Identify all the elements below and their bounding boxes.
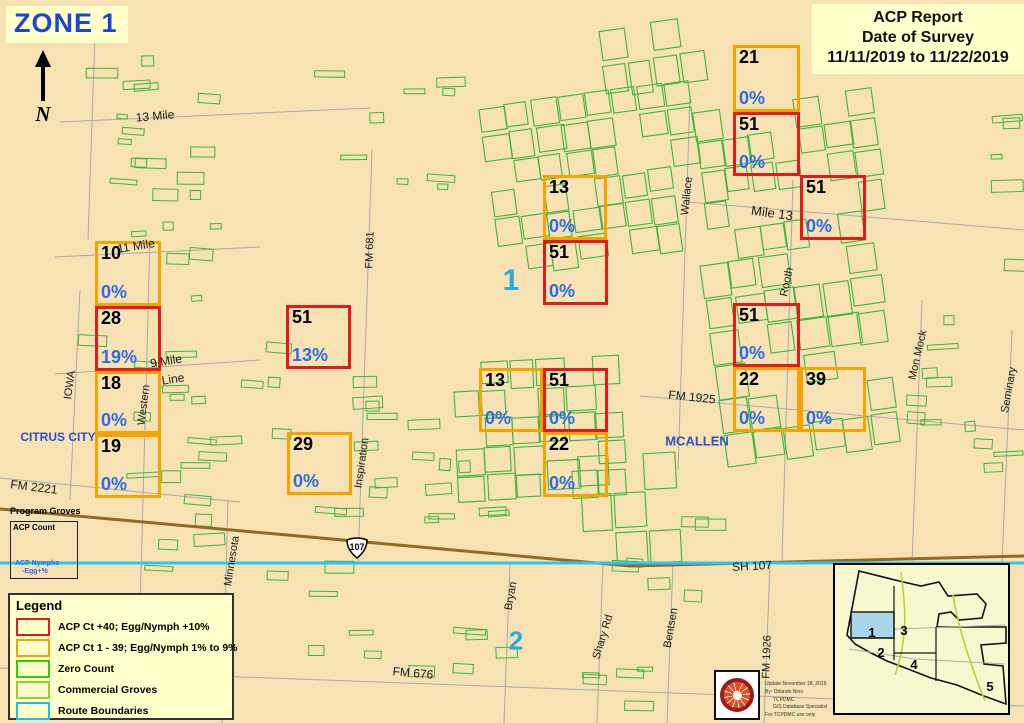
- commercial-grove: [845, 88, 874, 117]
- commercial-grove: [640, 111, 669, 137]
- commercial-grove: [1003, 118, 1020, 129]
- commercial-grove: [267, 571, 288, 580]
- commercial-grove: [643, 452, 677, 489]
- commercial-grove: [647, 167, 673, 192]
- commercial-grove: [657, 224, 683, 254]
- survey-square: 510%: [733, 303, 800, 367]
- commercial-grove: [974, 439, 992, 449]
- road-label: FM 681: [363, 231, 376, 269]
- commercial-grove: [454, 391, 479, 417]
- credit-line: GIS Database Specialist: [765, 704, 843, 712]
- acp-count: 51: [549, 370, 569, 391]
- commercial-grove: [341, 155, 367, 160]
- commercial-grove: [163, 222, 173, 230]
- commercial-grove: [153, 189, 178, 201]
- commercial-grove: [637, 83, 665, 109]
- credit-line: For TCPDMC use only: [765, 712, 843, 720]
- commercial-grove: [453, 627, 485, 635]
- commercial-grove: [994, 451, 1023, 457]
- commercial-grove: [131, 158, 147, 167]
- map-credits: Update November 18, 2019By: Orlando Nino…: [765, 681, 843, 720]
- commercial-grove: [370, 112, 384, 123]
- commercial-grove: [241, 380, 263, 389]
- commercial-grove: [425, 483, 452, 496]
- acp-count: 18: [101, 373, 121, 394]
- us-107-shield-icon: 107: [344, 536, 370, 560]
- egg-nymph-pct: 0%: [806, 408, 832, 429]
- commercial-grove: [558, 94, 586, 121]
- road-line: [88, 35, 95, 240]
- survey-square: 210%: [733, 45, 800, 112]
- acp-count: 13: [549, 177, 569, 198]
- commercial-grove: [458, 476, 486, 502]
- commercial-grove: [857, 310, 888, 345]
- commercial-grove: [628, 60, 653, 95]
- commercial-grove: [132, 231, 146, 237]
- commercial-grove: [198, 93, 220, 104]
- commercial-grove: [167, 253, 189, 264]
- acp-count: 22: [549, 434, 569, 455]
- acp-count: 29: [293, 434, 313, 455]
- commercial-grove: [649, 529, 681, 563]
- commercial-grove: [587, 118, 616, 149]
- commercial-grove: [629, 226, 659, 253]
- commercial-grove: [622, 173, 647, 198]
- acp-count: 51: [549, 242, 569, 263]
- legend-swatch: [16, 702, 50, 720]
- report-line-3: 11/11/2019 to 11/22/2019: [814, 48, 1022, 68]
- legend-label: ACP Ct 1 - 39; Egg/Nymph 1% to 9%: [58, 642, 238, 654]
- commercial-grove: [427, 174, 455, 183]
- commercial-grove: [268, 377, 280, 388]
- commercial-grove: [437, 77, 466, 87]
- legend-label: Route Boundaries: [58, 705, 148, 717]
- commercial-grove: [170, 394, 184, 400]
- road-line: [60, 108, 370, 122]
- road-label: FM 1926: [760, 635, 774, 679]
- commercial-grove: [184, 494, 211, 505]
- commercial-grove: [459, 461, 471, 473]
- program-groves-box: ACP Count ACP Nymphs -Egg+%: [10, 521, 78, 579]
- survey-square: 510%: [733, 112, 800, 176]
- acp-count: 39: [806, 369, 826, 390]
- commercial-grove: [375, 477, 398, 488]
- commercial-grove: [1004, 259, 1024, 271]
- commercial-grove: [991, 180, 1023, 193]
- commercial-grove: [195, 514, 211, 526]
- legend-title: Legend: [16, 598, 226, 613]
- commercial-grove: [516, 474, 541, 497]
- acp-count: 51: [739, 305, 759, 326]
- egg-nymph-pct: 13%: [292, 345, 328, 366]
- commercial-grove: [353, 396, 383, 409]
- credit-line: By: Orlando Nino: [765, 689, 843, 697]
- commercial-grove: [823, 281, 853, 318]
- commercial-grove: [616, 669, 643, 678]
- commercial-grove: [412, 452, 434, 460]
- commercial-grove: [404, 89, 425, 94]
- survey-square: 290%: [287, 432, 352, 495]
- commercial-grove: [190, 190, 200, 199]
- commercial-grove: [991, 154, 1002, 159]
- inset-zone-label: 5: [986, 679, 993, 694]
- credit-line: Update November 18, 2019: [765, 681, 843, 689]
- commercial-grove: [482, 134, 512, 162]
- legend-swatch: [16, 639, 50, 657]
- acp-count: 13: [485, 370, 505, 391]
- commercial-grove: [851, 275, 886, 306]
- commercial-grove: [479, 106, 508, 132]
- legend-label: Commercial Groves: [58, 684, 157, 696]
- commercial-grove: [599, 28, 628, 60]
- commercial-grove: [944, 316, 954, 325]
- survey-square: 390%: [800, 367, 866, 432]
- commercial-grove: [824, 121, 854, 147]
- commercial-grove: [210, 223, 221, 229]
- legend-swatch: [16, 660, 50, 678]
- legend-swatch: [16, 681, 50, 699]
- acp-count-label: ACP Count: [13, 523, 55, 532]
- acp-count: 22: [739, 369, 759, 390]
- commercial-grove: [855, 149, 884, 177]
- commercial-grove: [453, 663, 473, 673]
- commercial-grove: [514, 446, 545, 476]
- commercial-grove: [702, 170, 729, 203]
- legend-swatch: [16, 618, 50, 636]
- commercial-grove: [199, 452, 227, 462]
- commercial-grove: [86, 68, 118, 78]
- commercial-grove: [583, 674, 607, 684]
- commercial-grove: [567, 150, 595, 177]
- commercial-grove: [504, 102, 529, 127]
- road-label: SH 107: [732, 558, 773, 574]
- commercial-grove: [593, 147, 619, 177]
- road-line: [678, 95, 690, 470]
- commercial-grove: [191, 295, 201, 301]
- egg-nymph-pct: 0%: [101, 474, 127, 495]
- commercial-grove: [315, 71, 345, 78]
- commercial-grove: [439, 458, 451, 470]
- commercial-grove: [906, 395, 926, 406]
- commercial-grove: [650, 19, 681, 51]
- acp-count: 51: [292, 307, 312, 328]
- commercial-grove: [798, 126, 825, 153]
- commercial-grove: [110, 178, 137, 184]
- egg-nymph-pct: 0%: [806, 216, 832, 237]
- commercial-grove: [638, 667, 653, 671]
- commercial-grove: [495, 216, 523, 246]
- commercial-grove: [177, 172, 204, 184]
- commercial-grove: [194, 533, 225, 547]
- road-line: [358, 150, 372, 563]
- commercial-grove: [509, 129, 535, 159]
- commercial-grove: [531, 97, 560, 126]
- egg-nymph-pct: 0%: [739, 343, 765, 364]
- egg-nymph-pct: 0%: [739, 88, 765, 109]
- commercial-grove: [181, 463, 210, 469]
- inset-zone-label: 4: [910, 657, 918, 672]
- egg-nymph-pct: 19%: [101, 347, 137, 368]
- survey-square: 130%: [479, 368, 543, 432]
- egg-nymph-pct: 0%: [293, 471, 319, 492]
- legend-row: ACP Ct +40; Egg/Nymph +10%: [16, 616, 226, 637]
- zone-title: ZONE 1: [14, 8, 118, 38]
- egg-nymph-pct: 0%: [101, 410, 127, 431]
- commercial-grove: [625, 199, 652, 226]
- acp-count: 51: [806, 177, 826, 198]
- commercial-grove: [211, 436, 242, 445]
- survey-square: 190%: [95, 434, 161, 498]
- commercial-grove: [984, 463, 1003, 473]
- egg-nymph-pct: 0%: [549, 408, 575, 429]
- egg-nymph-pct: 0%: [101, 282, 127, 303]
- acp-count: 28: [101, 308, 121, 329]
- commercial-grove: [408, 419, 440, 430]
- commercial-grove: [760, 223, 786, 250]
- commercial-grove: [443, 88, 455, 96]
- north-arrow: N: [28, 50, 58, 127]
- program-groves-title: Program Groves: [10, 506, 81, 516]
- commercial-grove: [611, 87, 637, 114]
- commercial-grove: [700, 262, 732, 298]
- commercial-grove: [142, 56, 154, 66]
- tcpdmc-citrus-logo-icon: [720, 678, 754, 712]
- commercial-grove: [651, 196, 678, 225]
- commercial-grove: [907, 412, 925, 425]
- city-label: CITRUS CITY: [20, 430, 95, 444]
- commercial-grove: [425, 516, 439, 523]
- commercial-grove: [315, 506, 347, 514]
- grove-grid: [700, 241, 905, 469]
- survey-square: 220%: [733, 367, 800, 432]
- commercial-grove: [922, 368, 938, 379]
- commercial-grove: [117, 114, 127, 119]
- acp-survey-map: 100%2819%180%190%5113%290%130%510%130%51…: [0, 0, 1024, 723]
- report-title-box: ACP Report Date of Survey 11/11/2019 to …: [812, 4, 1024, 74]
- survey-square: 510%: [543, 368, 608, 432]
- commercial-grove: [846, 243, 877, 274]
- us-107-shield-text: 107: [349, 542, 364, 552]
- commercial-grove: [349, 630, 373, 635]
- commercial-grove: [191, 147, 215, 157]
- north-arrow-head-icon: [35, 50, 51, 67]
- survey-square: 510%: [800, 175, 866, 240]
- commercial-grove: [625, 701, 654, 711]
- legend-row: Commercial Groves: [16, 679, 226, 700]
- north-arrow-shaft: [41, 67, 45, 101]
- commercial-grove: [369, 487, 387, 498]
- legend-items: ACP Ct +40; Egg/Nymph +10%ACP Ct 1 - 39;…: [16, 616, 226, 721]
- commercial-grove: [697, 140, 725, 169]
- commercial-grove: [648, 578, 670, 590]
- tcpdmc-logo-box: [714, 670, 760, 720]
- commercial-grove: [653, 55, 680, 86]
- commercial-grove: [867, 377, 896, 410]
- commercial-grove: [581, 493, 612, 531]
- report-line-2: Date of Survey: [814, 28, 1022, 48]
- commercial-grove: [118, 139, 131, 145]
- inset-map: 12345: [835, 565, 1008, 713]
- survey-square: 130%: [543, 175, 607, 240]
- survey-square: 180%: [95, 371, 161, 434]
- commercial-grove: [514, 157, 541, 182]
- egg-nymph-pct: 0%: [549, 473, 575, 494]
- legend-row: Route Boundaries: [16, 700, 226, 721]
- egg-nymph-pct: 0%: [739, 152, 765, 173]
- commercial-grove: [488, 473, 517, 500]
- commercial-grove: [122, 127, 144, 135]
- acp-count: 19: [101, 436, 121, 457]
- zone-title-box: ZONE 1: [6, 6, 128, 43]
- commercial-grove: [397, 179, 408, 185]
- commercial-grove: [364, 651, 381, 659]
- commercial-grove: [134, 83, 158, 92]
- grove-grid: [597, 16, 708, 99]
- commercial-grove: [162, 471, 181, 483]
- zone-marker: 2: [509, 626, 523, 657]
- commercial-grove: [680, 51, 708, 84]
- city-label: MCALLEN: [665, 434, 729, 449]
- legend-row: ACP Ct 1 - 39; Egg/Nymph 1% to 9%: [16, 637, 226, 658]
- north-label: N: [28, 102, 58, 127]
- commercial-grove: [616, 531, 648, 565]
- commercial-grove: [797, 317, 830, 350]
- commercial-grove: [927, 343, 958, 350]
- survey-square: 510%: [543, 240, 608, 305]
- commercial-grove: [491, 189, 517, 217]
- legend-label: ACP Ct +40; Egg/Nymph +10%: [58, 621, 210, 633]
- commercial-grove: [145, 565, 173, 571]
- commercial-grove: [614, 492, 647, 528]
- credit-line: TCPDMC: [765, 697, 843, 705]
- inset-zone-label: 2: [877, 645, 884, 660]
- acp-count: 21: [739, 47, 759, 68]
- road-line: [1002, 330, 1012, 563]
- commercial-grove: [667, 107, 694, 135]
- survey-square: 220%: [543, 432, 608, 497]
- commercial-grove: [309, 646, 324, 656]
- commercial-grove: [484, 446, 511, 472]
- acp-count: 51: [739, 114, 759, 135]
- highway-sh107-line: [0, 509, 1024, 566]
- commercial-grove: [706, 297, 735, 328]
- commercial-grove: [192, 396, 206, 404]
- commercial-grove: [438, 184, 448, 190]
- commercial-grove: [695, 519, 726, 530]
- legend-label: Zero Count: [58, 663, 114, 675]
- commercial-grove: [335, 508, 364, 516]
- commercial-grove: [309, 591, 337, 596]
- zone-marker: 1: [503, 264, 520, 298]
- commercial-grove: [366, 401, 379, 411]
- commercial-grove: [158, 539, 177, 550]
- egg-nymph-pct: 0%: [739, 408, 765, 429]
- commercial-grove: [735, 226, 764, 258]
- report-line-1: ACP Report: [814, 8, 1022, 28]
- commercial-grove: [965, 421, 976, 432]
- acp-nymph-label: ACP Nymphs -Egg+%: [15, 560, 59, 576]
- commercial-grove: [728, 258, 756, 288]
- egg-nymph-pct: 0%: [485, 408, 511, 429]
- inset-zone-label: 1: [868, 625, 875, 640]
- commercial-grove: [353, 376, 377, 387]
- commercial-grove: [367, 413, 397, 419]
- egg-nymph-pct: 0%: [549, 281, 575, 302]
- inset-zone-label: 3: [900, 623, 907, 638]
- zone-overview-inset: 12345: [833, 563, 1010, 715]
- commercial-grove: [684, 590, 702, 602]
- legend: Legend ACP Ct +40; Egg/Nymph +10%ACP Ct …: [8, 593, 234, 720]
- commercial-grove: [188, 438, 217, 446]
- legend-row: Zero Count: [16, 658, 226, 679]
- egg-nymph-pct: 0%: [549, 216, 575, 237]
- survey-square: 5113%: [286, 305, 351, 369]
